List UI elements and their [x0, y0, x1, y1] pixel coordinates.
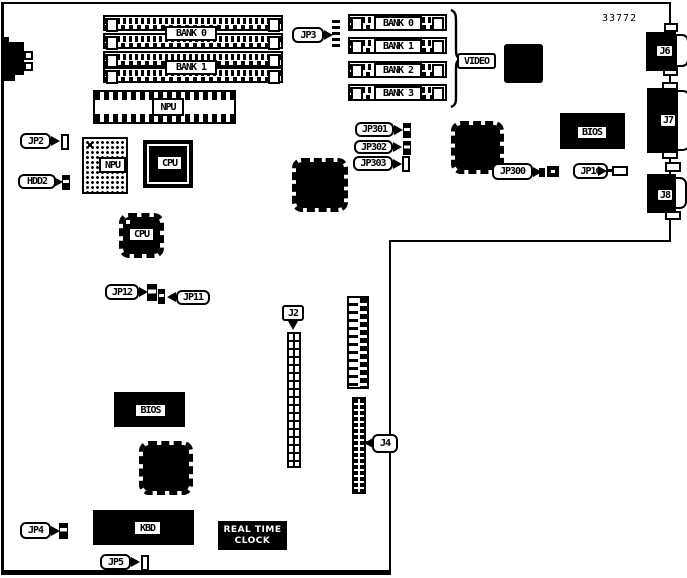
- hdd2-pointer: [54, 177, 63, 187]
- jp16-jumper: [612, 166, 628, 176]
- jp3-label: JP3: [292, 27, 324, 43]
- jp302-pointer: [393, 142, 402, 152]
- rtc-line2: CLOCK: [235, 536, 271, 547]
- jp4-label: JP4: [20, 522, 51, 539]
- jp301-pointer: [394, 125, 403, 135]
- bank3-right-label: BANK 3: [374, 86, 422, 101]
- jp16-stem: [606, 169, 613, 172]
- jp300-pointer: [533, 167, 542, 177]
- j7-shell: [676, 90, 687, 151]
- jp11-jumper: [158, 289, 165, 304]
- edge-connector: [3, 42, 24, 75]
- bank1-right-label: BANK 1: [374, 39, 422, 54]
- j2-connector: [287, 332, 301, 468]
- j8-label: J8: [656, 188, 674, 202]
- jp5-pointer: [131, 557, 140, 567]
- j6-label: J6: [655, 44, 674, 58]
- jp12-jumper: [147, 284, 157, 301]
- jp11-label: JP11: [176, 290, 210, 305]
- j7-label: J7: [659, 113, 677, 128]
- video-chip: [504, 44, 543, 83]
- jp3-pin-header: [332, 20, 340, 48]
- board-notch-vertical: [389, 240, 391, 572]
- jp4-pointer: [51, 526, 60, 536]
- bios-bottom-label: BIOS: [134, 403, 167, 418]
- board-edge-bottom: [1, 570, 391, 575]
- rtc-line1: REAL TIME: [223, 525, 281, 536]
- j6-shell: [675, 34, 687, 67]
- hdd2-jumper: [62, 175, 70, 190]
- jp300-label: JP300: [492, 163, 533, 180]
- hdd2-label: HDD2: [18, 174, 56, 189]
- qfp-chip: [139, 441, 193, 495]
- npu-chip-label: NPU: [99, 157, 126, 173]
- jp303-pointer: [393, 159, 402, 169]
- jp5-jumper: [141, 555, 149, 571]
- board-edge-left: [1, 2, 4, 574]
- motherboard-diagram: BANK 0 BANK 1 JP3 BANK 0 BANK 1 BANK 2 B…: [0, 0, 687, 578]
- cpu-secondary-label: CPU: [128, 227, 155, 242]
- bank2-right-label: BANK 2: [374, 63, 422, 78]
- jp302-jumper: [403, 141, 411, 155]
- jp12-pointer: [139, 287, 148, 297]
- part-number: 33772: [602, 13, 637, 24]
- bios-top-label: BIOS: [576, 125, 608, 140]
- jp303-jumper: [402, 156, 410, 172]
- jp303-label: JP303: [353, 156, 393, 171]
- jp301-jumper: [403, 123, 411, 138]
- j8-mount-top: [665, 162, 681, 172]
- jp302-label: JP302: [354, 140, 393, 154]
- jp300-jumper-slot: [551, 170, 555, 173]
- j2-label: J2: [282, 305, 304, 321]
- j2-pointer: [288, 321, 298, 330]
- bank0-right-label: BANK 0: [374, 16, 422, 31]
- jp5-label: JP5: [100, 554, 131, 570]
- npu-socket-label: NPU: [152, 98, 184, 116]
- jp2-pointer: [51, 136, 60, 146]
- cpu-secondary-pin1-dot: [126, 220, 130, 224]
- jp2-jumper: [61, 134, 69, 150]
- rtc-chip: REAL TIME CLOCK: [218, 521, 287, 550]
- jp3-pointer: [324, 30, 333, 40]
- video-label: VIDEO: [457, 53, 496, 69]
- edge-connector-pin2: [24, 62, 33, 71]
- jp4-jumper: [59, 523, 68, 539]
- jp2-label: JP2: [20, 133, 51, 149]
- jp11-pointer: [167, 292, 176, 302]
- kbd-label: KBD: [134, 521, 161, 535]
- bank1-left-label: BANK 1: [165, 60, 217, 75]
- board-edge-top: [1, 2, 671, 4]
- edge-connector-bottom-step: [3, 74, 15, 81]
- cpu-chip-label: CPU: [156, 155, 183, 171]
- power-connector: [347, 296, 369, 389]
- qfp-chip: [292, 158, 348, 212]
- j6-mount-top: [664, 23, 678, 32]
- npu-pin1-dot: [88, 143, 92, 147]
- edge-connector-top-step: [3, 37, 9, 43]
- board-notch-horizontal: [389, 240, 671, 242]
- jp301-label: JP301: [355, 122, 394, 137]
- edge-connector-pin1: [24, 51, 33, 60]
- jp12-label: JP12: [105, 284, 139, 300]
- bank0-left-label: BANK 0: [165, 26, 217, 41]
- j4-label: J4: [372, 434, 398, 453]
